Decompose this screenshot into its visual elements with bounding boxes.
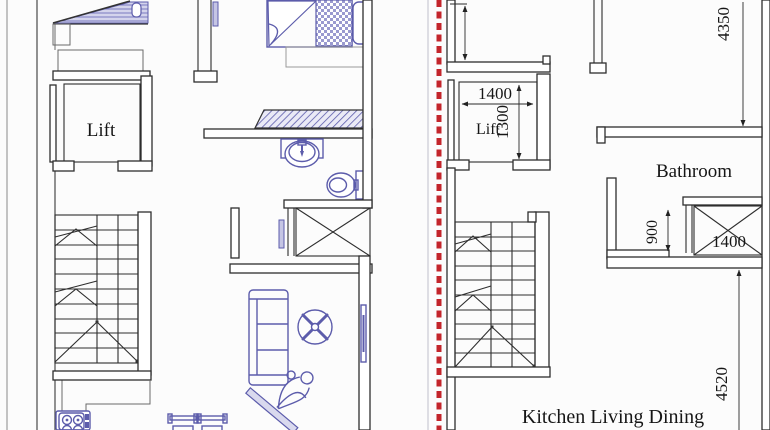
- wash-basin: [281, 139, 323, 167]
- upper-span-dimension: 4350: [714, 7, 733, 41]
- duct-width-dimension: 1400: [712, 232, 746, 251]
- staircase-left: [55, 212, 151, 375]
- chair: [168, 414, 198, 430]
- ventilation-duct-right: 1400 900: [644, 197, 762, 255]
- floor-plan-canvas: Lift: [0, 0, 770, 430]
- hatched-ramp: [53, 1, 148, 71]
- lift-room-left: Lift: [50, 71, 152, 171]
- bathroom-label: Bathroom: [656, 161, 732, 182]
- chair: [197, 414, 227, 430]
- lift-width-dimension: 1400: [478, 84, 512, 103]
- wardrobe-hatch: [204, 110, 372, 138]
- toilet: [327, 171, 367, 199]
- lower-span-dimension: 4520: [712, 367, 731, 401]
- dimension-4350: 4350: [714, 2, 743, 126]
- lift-left-label: Lift: [87, 120, 116, 141]
- kitchen-living-dining-label: Kitchen Living Dining: [522, 406, 704, 428]
- stove: [56, 411, 90, 430]
- interior-wall: [194, 0, 218, 82]
- living-room: [230, 256, 372, 430]
- duct-offset-dimension: 900: [644, 220, 661, 244]
- left-unit-plan: Lift: [7, 0, 372, 430]
- bedroom-right-wall: [363, 0, 372, 208]
- lift-depth-dimension: 1300: [493, 105, 512, 139]
- door-leaf: [279, 220, 284, 248]
- upper-interior-wall: [590, 0, 606, 73]
- ventilation-shaft-left: [231, 200, 372, 258]
- bed: [267, 0, 369, 67]
- ceiling-fan: [298, 310, 332, 344]
- dimension-4520: 4520: [712, 270, 739, 430]
- left-boundary-lines: [7, 0, 62, 430]
- lift-room-right: 1400 Lift 1300: [447, 74, 550, 170]
- dining-chairs: [168, 414, 227, 430]
- outer-right-wall: [762, 0, 770, 430]
- staircase-right: [447, 168, 550, 430]
- sofa: [249, 290, 288, 385]
- kitchen-counter: [53, 371, 151, 412]
- right-unit-plan: 1400 Lift 1300 4350 Bathroom: [447, 0, 770, 430]
- red-divider-line: [428, 0, 439, 430]
- floor-plan: Lift: [0, 0, 770, 430]
